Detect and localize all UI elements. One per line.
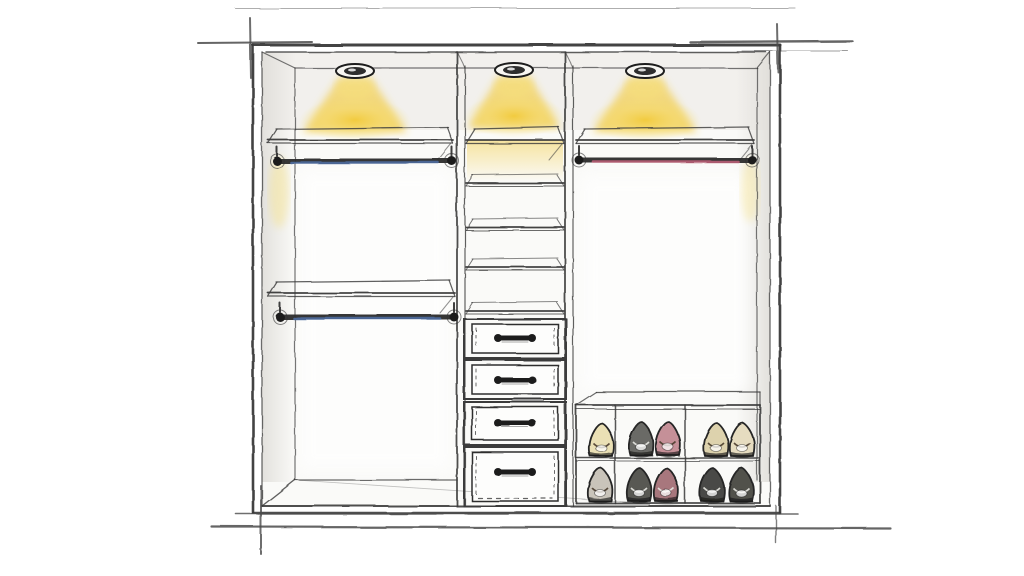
ceiling-light-middle [495, 63, 533, 77]
drawer-4 [464, 447, 566, 506]
wardrobe-interior-sketch [0, 0, 1024, 576]
drawer-3 [464, 402, 566, 445]
ceiling-light-right [626, 64, 664, 78]
ceiling-light-left [336, 64, 374, 78]
drawer-1 [464, 319, 566, 358]
drawer-2 [464, 360, 566, 399]
sketch-canvas [0, 0, 1024, 576]
